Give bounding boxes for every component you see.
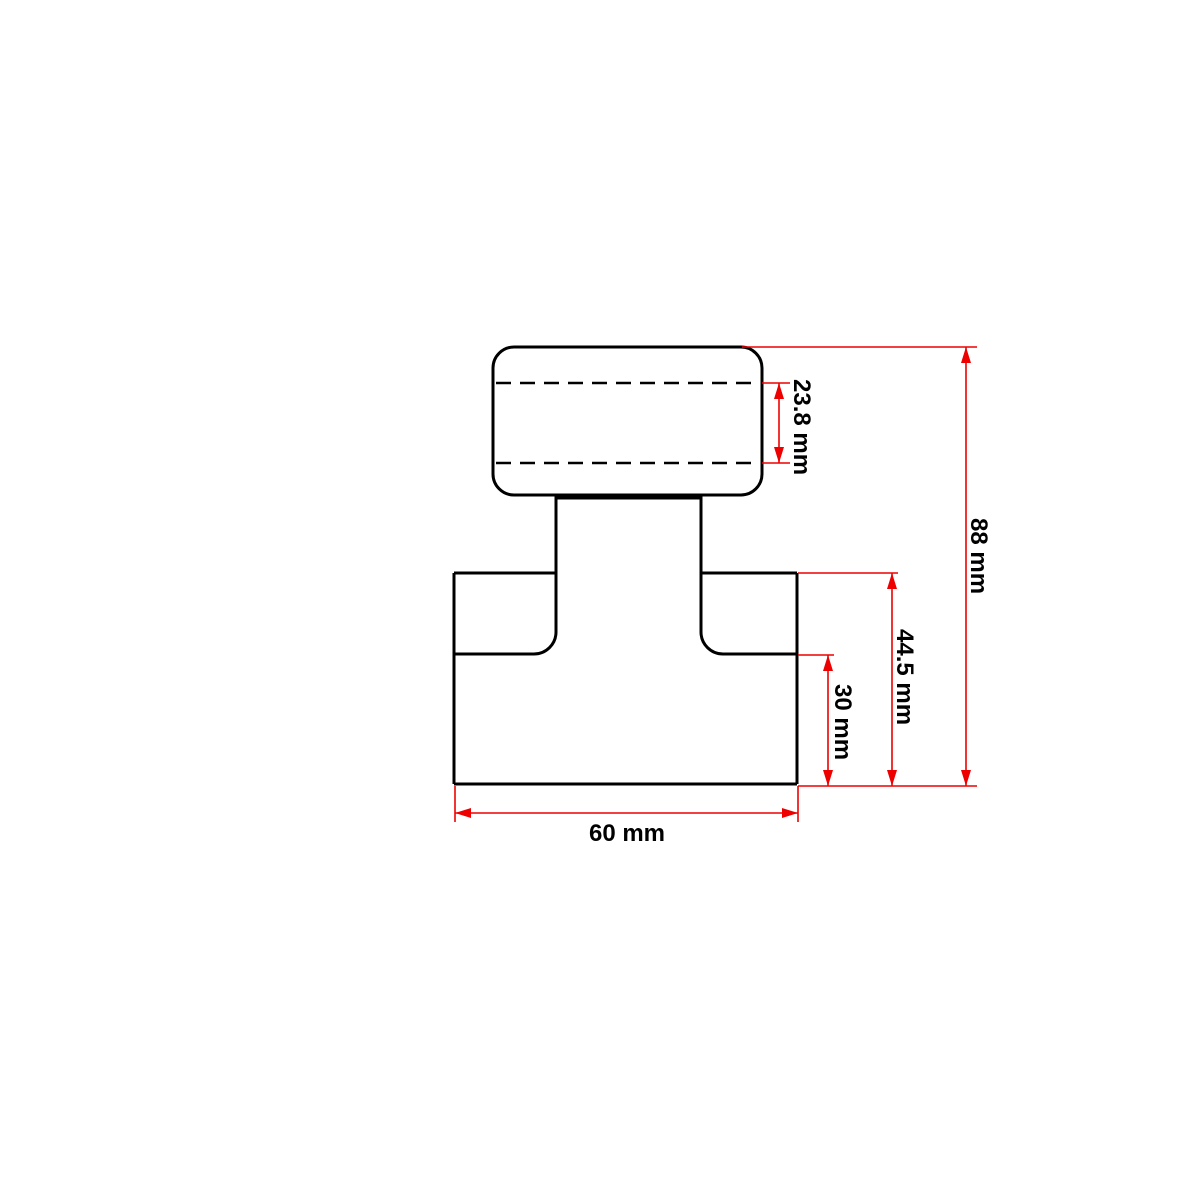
up-arrowhead-icon xyxy=(823,655,833,671)
dimension-knob-section-height: 23.8 mm xyxy=(762,379,815,475)
drawing-page: 23.8 mm 88 mm 44.5 mm 30 mm xyxy=(0,0,1200,1200)
knob-outline xyxy=(493,347,762,495)
dimension-label-lower-body-height: 44.5 mm xyxy=(891,629,918,725)
dimension-label-base-width: 60 mm xyxy=(589,820,665,847)
up-arrowhead-icon xyxy=(774,383,784,399)
dimension-label-overall-height: 88 mm xyxy=(965,518,992,594)
technical-drawing-canvas: 23.8 mm 88 mm 44.5 mm 30 mm xyxy=(0,0,1200,1200)
up-arrowhead-icon xyxy=(887,573,897,589)
dimension-base-height: 30 mm xyxy=(798,655,856,786)
right-arrowhead-icon xyxy=(782,808,798,818)
dimension-lower-body-height: 44.5 mm xyxy=(798,573,918,786)
down-arrowhead-icon xyxy=(961,770,971,786)
dimension-base-width: 60 mm xyxy=(455,786,798,847)
left-arrowhead-icon xyxy=(455,808,471,818)
dimension-label-knob-section-height: 23.8 mm xyxy=(788,379,815,475)
down-arrowhead-icon xyxy=(823,770,833,786)
down-arrowhead-icon xyxy=(774,447,784,463)
dimension-label-base-height: 30 mm xyxy=(829,684,856,760)
part-outline xyxy=(454,347,797,784)
down-arrowhead-icon xyxy=(887,770,897,786)
up-arrowhead-icon xyxy=(961,347,971,363)
